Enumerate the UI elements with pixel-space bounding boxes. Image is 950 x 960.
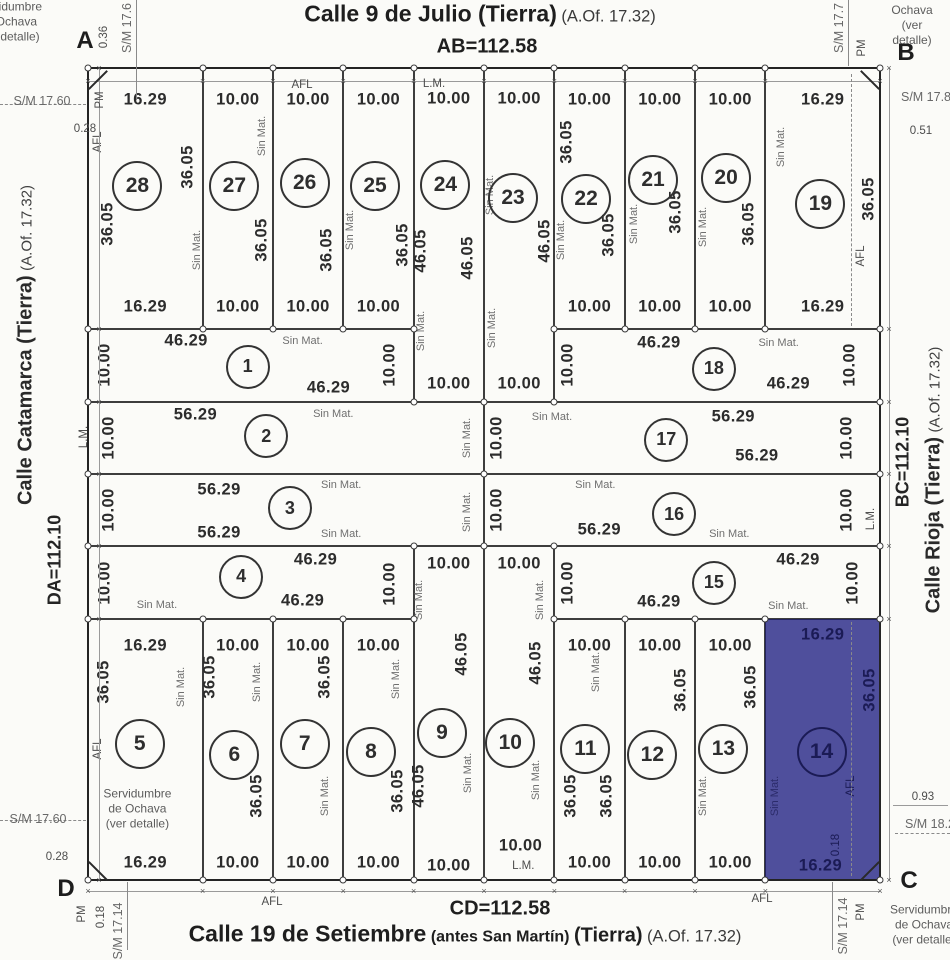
sin-mat-label: Sin Mat. xyxy=(628,204,640,244)
dimension-label: 16.29 xyxy=(124,636,167,655)
note-label: Servidumbre de Ochava (ver detalle) xyxy=(103,787,171,832)
lot-1[interactable]: 10.0046.29Sin Mat.46.2910.001 xyxy=(88,329,414,401)
dimension-line xyxy=(88,891,880,892)
dimension-label: 36.05 xyxy=(179,146,198,189)
annotation-sm: S/M 17.7 xyxy=(832,3,846,53)
measure-tick: × xyxy=(886,541,891,551)
dimension-label: 10.00 xyxy=(498,555,541,574)
sin-mat-label: Sin Mat. xyxy=(461,491,473,531)
dimension-label: 16.29 xyxy=(801,626,844,645)
sin-mat-label: Sin Mat. xyxy=(191,230,203,270)
lot-26[interactable]: 10.0036.0510.0026 xyxy=(273,68,343,329)
lot-number-badge: 20 xyxy=(701,153,751,203)
lot-number-badge: 14 xyxy=(797,727,847,777)
dimension-label: 56.29 xyxy=(197,481,240,500)
lot-number-badge: 3 xyxy=(268,486,312,530)
lot-number-badge: 23 xyxy=(488,173,538,223)
lot-number-badge: 7 xyxy=(280,719,330,769)
annotation-servidumbre: Servidumbre de Ochava (ver detalle) xyxy=(0,0,42,45)
lot-20[interactable]: 10.00Sin Mat.36.0510.0020 xyxy=(695,68,765,329)
dimension-label: 10.00 xyxy=(216,636,259,655)
dimension-label: 10.00 xyxy=(357,91,400,110)
measure-tick: × xyxy=(341,886,346,896)
lot-16[interactable]: 10.00Sin Mat.56.29Sin Mat.10.00L.M.16 xyxy=(484,474,880,546)
annotation-sm: S/M 17.8 xyxy=(901,90,950,104)
sin-mat-label: Sin Mat. xyxy=(321,528,361,540)
sin-mat-label: Sin Mat. xyxy=(697,776,709,816)
measure-tick: × xyxy=(886,469,891,479)
dimension-label: 36.05 xyxy=(859,177,878,220)
lot-number-badge: 19 xyxy=(795,179,845,229)
dimension-label: 10.00 xyxy=(380,344,399,387)
dimension-label: 10.00 xyxy=(840,344,859,387)
annotation-afl: AFL xyxy=(751,893,772,905)
dimension-label: 10.00 xyxy=(216,91,259,110)
sin-mat-label: Sin Mat. xyxy=(484,175,496,215)
dimension-label: 10.00 xyxy=(427,856,470,875)
dimension-label: 10.00 xyxy=(286,854,329,873)
lot-number-badge: 15 xyxy=(692,561,736,605)
dimension-label: 10.00 xyxy=(638,636,681,655)
annotation-sm: S/M 17.6 xyxy=(120,3,134,53)
dimension-line xyxy=(127,882,128,950)
dimension-label: 46.29 xyxy=(637,593,680,612)
annotation-sm: S/M 17.60 xyxy=(14,94,71,108)
measure-tick: × xyxy=(622,886,627,896)
dimension-label: 56.29 xyxy=(712,407,755,426)
dimension-label: 16.29 xyxy=(124,91,167,110)
lot-number-badge: 28 xyxy=(112,161,162,211)
dimension-label: 56.29 xyxy=(197,523,240,542)
lot-13[interactable]: 10.0036.05Sin Mat.10.0013 xyxy=(695,619,765,880)
dimension-label: 10.00 xyxy=(709,298,752,317)
tag-label: L.M. xyxy=(512,860,534,872)
sin-mat-label: Sin Mat. xyxy=(321,479,361,491)
lot-8[interactable]: 10.00Sin Mat.36.0510.008 xyxy=(343,619,413,880)
dimension-label: 46.29 xyxy=(637,333,680,352)
lot-number-badge: 18 xyxy=(692,347,736,391)
annotation-0.93: 0.93 xyxy=(912,791,934,803)
dimension-label: 10.00 xyxy=(487,416,506,459)
sin-mat-label: Sin Mat. xyxy=(555,220,567,260)
lot-11[interactable]: 10.00Sin Mat.36.0536.0510.0011 xyxy=(554,619,624,880)
measure-tick: × xyxy=(200,886,205,896)
dimension-label: 36.05 xyxy=(201,655,220,698)
annotation-sm: S/M 18.2 xyxy=(905,817,950,831)
annotation-sm: S/M 17.14 xyxy=(111,903,125,960)
dimension-label: 10.00 xyxy=(709,854,752,873)
lot-23[interactable]: 10.00Sin Mat.46.05Sin Mat.10.0023 xyxy=(484,68,554,402)
dimension-label: 36.05 xyxy=(667,190,686,233)
lot-number-badge: 26 xyxy=(280,158,330,208)
lot-number-badge: 8 xyxy=(346,727,396,777)
dimension-line xyxy=(889,68,890,880)
measure-tick: × xyxy=(481,886,486,896)
dimension-label: 10.00 xyxy=(427,374,470,393)
measure-tick: × xyxy=(877,886,882,896)
lot-number-badge: 16 xyxy=(652,492,696,536)
sin-mat-label: Sin Mat. xyxy=(532,411,572,423)
dimension-label: 10.00 xyxy=(568,91,611,110)
lot-7[interactable]: 10.0036.05Sin Mat.10.007 xyxy=(273,619,343,880)
measure-tick: × xyxy=(411,886,416,896)
dimension-label: 36.05 xyxy=(253,218,272,261)
lot-number-badge: 13 xyxy=(698,724,748,774)
lot-22[interactable]: 10.0036.05Sin Mat.36.0510.0022 xyxy=(554,68,624,329)
lot-number-badge: 4 xyxy=(219,555,263,599)
dimension-label: 10.00 xyxy=(427,555,470,574)
sin-mat-label: Sin Mat. xyxy=(175,667,187,707)
street-name-bottom: Calle 19 de Setiembre (antes San Martín)… xyxy=(189,921,742,948)
dimension-label: 10.00 xyxy=(357,854,400,873)
dimension-line xyxy=(893,805,948,806)
measure-tick: × xyxy=(886,875,891,885)
lot-number-badge: 17 xyxy=(644,418,688,462)
dimension-label: 10.00 xyxy=(709,91,752,110)
tag-label: AFL xyxy=(92,739,104,760)
sin-mat-label: Sin Mat. xyxy=(282,335,322,347)
dimension-label: 36.05 xyxy=(247,774,266,817)
dimension-label: 10.00 xyxy=(96,561,115,604)
annotation-afl: AFL xyxy=(261,896,282,908)
dimension-label: 36.05 xyxy=(597,774,616,817)
sin-mat-label: Sin Mat. xyxy=(251,662,263,702)
sin-mat-label: Sin Mat. xyxy=(319,776,331,816)
street-dim-left: DA=112.10 xyxy=(45,515,66,606)
dimension-label: 46.05 xyxy=(536,220,555,263)
lot-27[interactable]: 10.00Sin Mat.36.0510.0027 xyxy=(203,68,273,329)
sin-mat-label: Sin Mat. xyxy=(462,753,474,793)
dimension-label: 10.00 xyxy=(498,89,541,108)
dimension-label: 10.00 xyxy=(380,562,399,605)
lot-number-badge: 11 xyxy=(560,724,610,774)
dimension-label: 10.00 xyxy=(568,298,611,317)
corner-letter-B: B xyxy=(897,39,914,67)
dimension-label: 46.29 xyxy=(294,551,337,570)
tag-label: 0.18 xyxy=(830,834,842,856)
lot-number-badge: 25 xyxy=(350,161,400,211)
dimension-label: 46.05 xyxy=(412,230,431,273)
lot-number-badge: 27 xyxy=(209,161,259,211)
dimension-label: 10.00 xyxy=(286,298,329,317)
street-bottom-name: Calle 19 de Setiembre xyxy=(189,921,427,947)
dimension-label: 46.05 xyxy=(453,632,472,675)
street-left-aof: (A.Of. 17.32) xyxy=(19,185,36,271)
dimension-label: 10.00 xyxy=(216,298,259,317)
sin-mat-label: Sin Mat. xyxy=(768,600,808,612)
dimension-label: 56.29 xyxy=(578,520,621,539)
dimension-label: 36.05 xyxy=(316,655,335,698)
annotation-pm: PM xyxy=(855,903,867,920)
lot-14[interactable]: 16.2936.05Sin Mat.AFL0.1816.2914 xyxy=(765,619,880,880)
dimension-label: 56.29 xyxy=(174,406,217,425)
dimension-label: 16.29 xyxy=(801,298,844,317)
dimension-label: 36.05 xyxy=(94,660,113,703)
dimension-label: 36.05 xyxy=(562,774,581,817)
street-bottom-antes: (antes San Martín) xyxy=(431,929,570,946)
sin-mat-label: Sin Mat. xyxy=(709,528,749,540)
dimension-line xyxy=(0,820,86,821)
dimension-label: 10.00 xyxy=(568,636,611,655)
dimension-label: 10.00 xyxy=(216,854,259,873)
street-name-left: Calle Catamarca (Tierra) (A.Of. 17.32) xyxy=(15,185,38,505)
dimension-label: 36.05 xyxy=(557,120,576,163)
lot-3[interactable]: 10.0056.29Sin Mat.56.29Sin Mat.Sin Mat.3 xyxy=(88,474,484,546)
dimension-line xyxy=(895,833,950,834)
lot-2[interactable]: 10.0056.29Sin Mat.Sin Mat.2 xyxy=(88,402,484,474)
lot-24[interactable]: 10.0046.0546.05Sin Mat.10.0024 xyxy=(414,68,484,402)
annotation-0.36: 0.36 xyxy=(98,26,110,48)
dimension-label: 10.00 xyxy=(838,489,857,532)
sin-mat-label: Sin Mat. xyxy=(486,307,498,347)
sin-mat-label: Sin Mat. xyxy=(534,580,546,620)
lot-25[interactable]: 10.00Sin Mat.36.0510.0025 xyxy=(343,68,413,329)
annotation-de: de Ochava (ver detalle) xyxy=(891,0,932,48)
dimension-label: 46.29 xyxy=(164,332,207,351)
lot-28[interactable]: 16.29AFL36.0536.05Sin Mat.16.2928 xyxy=(88,68,203,329)
street-name-top: Calle 9 de Julio (Tierra) (A.Of. 17.32) xyxy=(304,1,656,28)
dimension-label: 10.00 xyxy=(96,344,115,387)
lot-10[interactable]: 10.00Sin Mat.46.05Sin Mat.10.00L.M.10 xyxy=(484,546,554,880)
lot-number-badge: 24 xyxy=(420,160,470,210)
annotation-pm: PM xyxy=(76,905,88,922)
lot-number-badge: 12 xyxy=(627,730,677,780)
dimension-label: 46.29 xyxy=(281,591,324,610)
sin-mat-label: Sin Mat. xyxy=(590,651,602,691)
lot-number-badge: 5 xyxy=(115,719,165,769)
corner-letter-A: A xyxy=(76,27,93,55)
lot-18[interactable]: 10.0046.29Sin Mat.46.2910.0018 xyxy=(554,329,880,401)
measure-tick: × xyxy=(85,886,90,896)
sin-mat-label: Sin Mat. xyxy=(769,776,781,816)
lot-6[interactable]: 10.0036.05Sin Mat.36.0510.006 xyxy=(203,619,273,880)
sin-mat-label: Sin Mat. xyxy=(775,127,787,167)
street-dim-right: BC=112.10 xyxy=(893,417,914,508)
dimension-label: 10.00 xyxy=(99,489,118,532)
sin-mat-label: Sin Mat. xyxy=(530,759,542,799)
street-name-right: Calle Rioja (Tierra) (A.Of. 17.32) xyxy=(923,347,946,614)
dimension-label: 36.05 xyxy=(860,668,879,711)
dimension-label: 10.00 xyxy=(638,91,681,110)
dimension-label: 10.00 xyxy=(498,374,541,393)
sin-mat-label: Sin Mat. xyxy=(390,659,402,699)
dimension-label: 10.00 xyxy=(99,416,118,459)
annotation-0.51: 0.51 xyxy=(910,125,932,137)
corner-letter-D: D xyxy=(57,875,74,903)
dimension-label: 10.00 xyxy=(286,91,329,110)
dimension-label: 10.00 xyxy=(559,561,578,604)
lot-17[interactable]: 10.00Sin Mat.56.2956.2910.0017 xyxy=(484,402,880,474)
lot-9[interactable]: 10.00Sin Mat.46.0546.05Sin Mat.10.009 xyxy=(414,546,484,880)
dimension-label: 46.29 xyxy=(307,378,350,397)
street-right-name: Calle Rioja (Tierra) xyxy=(923,437,945,613)
dimension-line xyxy=(848,0,849,66)
dimension-label: 36.05 xyxy=(318,229,337,272)
tag-label: AFL xyxy=(845,775,857,796)
lot-15[interactable]: 10.0046.2946.29Sin Mat.10.0015 xyxy=(554,546,880,618)
annotation-sm: S/M 17.60 xyxy=(10,812,67,826)
street-right-aof: (A.Of. 17.32) xyxy=(927,347,944,433)
sin-mat-label: Sin Mat. xyxy=(461,418,473,458)
lot-21[interactable]: 10.00Sin Mat.36.0510.0021 xyxy=(625,68,695,329)
sin-mat-label: Sin Mat. xyxy=(137,599,177,611)
annotation-servidumbre: Servidumbre de Ochava (ver detalle) xyxy=(890,903,950,948)
dimension-label: 36.05 xyxy=(672,668,691,711)
measure-tick: × xyxy=(886,324,891,334)
lot-number-badge: 21 xyxy=(628,155,678,205)
dimension-label: 46.05 xyxy=(527,642,546,685)
lot-number-badge: 6 xyxy=(209,730,259,780)
survey-plan: Calle 9 de Julio (Tierra) (A.Of. 17.32) … xyxy=(0,0,950,950)
dimension-label: 10.00 xyxy=(844,561,863,604)
dimension-label: 10.00 xyxy=(286,636,329,655)
annotation-0.28: 0.28 xyxy=(46,851,68,863)
sin-mat-label: Sin Mat. xyxy=(313,408,353,420)
dimension-label: 46.29 xyxy=(767,374,810,393)
lot-19[interactable]: 16.29Sin Mat.36.05AFL16.2919 xyxy=(765,68,880,329)
lot-number-badge: 1 xyxy=(226,345,270,389)
dimension-line xyxy=(832,882,833,950)
measure-tick: × xyxy=(886,397,891,407)
dimension-label: 16.29 xyxy=(124,854,167,873)
street-bottom-aof: (A.Of. 17.32) xyxy=(647,928,741,946)
dimension-label: 16.29 xyxy=(124,298,167,317)
dimension-label: 10.00 xyxy=(357,298,400,317)
dimension-line xyxy=(0,104,86,105)
sin-mat-label: Sin Mat. xyxy=(697,207,709,247)
lot-12[interactable]: 10.0036.0510.0012 xyxy=(625,619,695,880)
dimension-label: 10.00 xyxy=(638,854,681,873)
street-left-name: Calle Catamarca (Tierra) xyxy=(15,275,37,505)
lot-number-badge: 9 xyxy=(417,708,467,758)
corner-letter-C: C xyxy=(900,867,917,895)
annotation-0.18: 0.18 xyxy=(95,906,107,928)
dimension-label: 36.05 xyxy=(388,769,407,812)
dimension-label: 10.00 xyxy=(427,89,470,108)
annotation-pm: PM xyxy=(856,39,868,56)
street-dim-bottom: CD=112.58 xyxy=(450,898,551,921)
lot-number-badge: 22 xyxy=(561,174,611,224)
sin-mat-label: Sin Mat. xyxy=(344,209,356,249)
street-top-name: Calle 9 de Julio (Tierra) xyxy=(304,1,557,27)
tag-label: AFL xyxy=(92,131,104,152)
dimension-label: 16.29 xyxy=(801,91,844,110)
dimension-label: 10.00 xyxy=(838,416,857,459)
dimension-label: 36.05 xyxy=(599,213,618,256)
sin-mat-label: Sin Mat. xyxy=(415,311,427,351)
measure-tick: × xyxy=(886,614,891,624)
dimension-label: 36.05 xyxy=(99,203,118,246)
street-bottom-tierra: (Tierra) xyxy=(574,925,643,947)
dimension-label: 10.00 xyxy=(487,489,506,532)
dimension-label: 36.05 xyxy=(741,666,760,709)
tag-label: L.M. xyxy=(865,507,877,529)
sin-mat-label: Sin Mat. xyxy=(256,116,268,156)
dimension-label: 16.29 xyxy=(799,857,842,876)
street-dim-top: AB=112.58 xyxy=(437,36,538,59)
sin-mat-label: Sin Mat. xyxy=(413,580,425,620)
dimension-label: 36.05 xyxy=(740,203,759,246)
measure-tick: × xyxy=(552,886,557,896)
measure-tick: × xyxy=(692,886,697,896)
dimension-label: 46.05 xyxy=(458,236,477,279)
measure-tick: × xyxy=(763,886,768,896)
dimension-label: 36.05 xyxy=(394,224,413,267)
dimension-label: 10.00 xyxy=(499,836,542,855)
tag-label: AFL xyxy=(855,245,867,266)
lot-5[interactable]: 16.2936.05Sin Mat.AFLServidumbre de Ocha… xyxy=(88,619,203,880)
dimension-label: 10.00 xyxy=(559,344,578,387)
annotation-sm: S/M 17.14 xyxy=(836,898,850,955)
dimension-label: 46.29 xyxy=(776,551,819,570)
dimension-label: 10.00 xyxy=(638,298,681,317)
sin-mat-label: Sin Mat. xyxy=(758,337,798,349)
measure-tick: × xyxy=(886,63,891,73)
street-top-aof: (A.Of. 17.32) xyxy=(561,8,655,26)
lot-4[interactable]: 10.0046.2946.29Sin Mat.10.004 xyxy=(88,546,414,618)
dimension-label: 10.00 xyxy=(357,636,400,655)
dimension-label: 10.00 xyxy=(709,636,752,655)
dimension-label: 56.29 xyxy=(735,447,778,466)
sin-mat-label: Sin Mat. xyxy=(575,479,615,491)
lot-number-badge: 2 xyxy=(244,414,288,458)
lot-number-badge: 10 xyxy=(485,718,535,768)
measure-tick: × xyxy=(270,886,275,896)
dimension-label: 10.00 xyxy=(568,854,611,873)
